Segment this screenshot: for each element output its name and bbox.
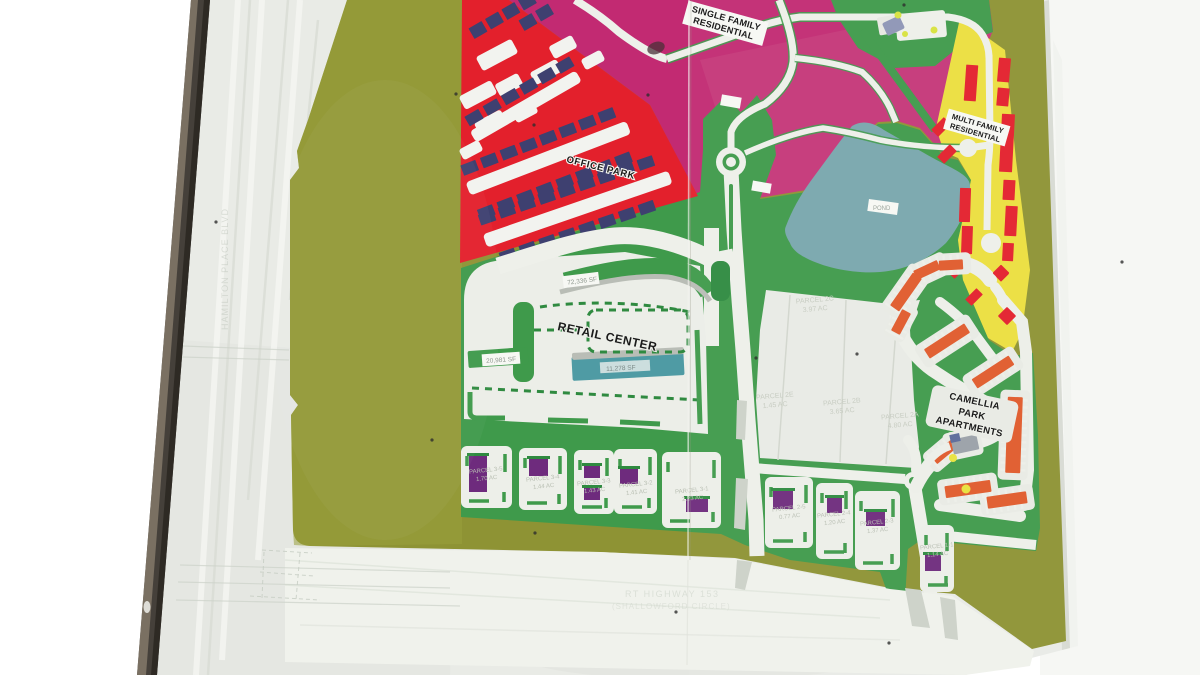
svg-text:HAMILTON PLACE BLVD: HAMILTON PLACE BLVD (220, 208, 230, 330)
